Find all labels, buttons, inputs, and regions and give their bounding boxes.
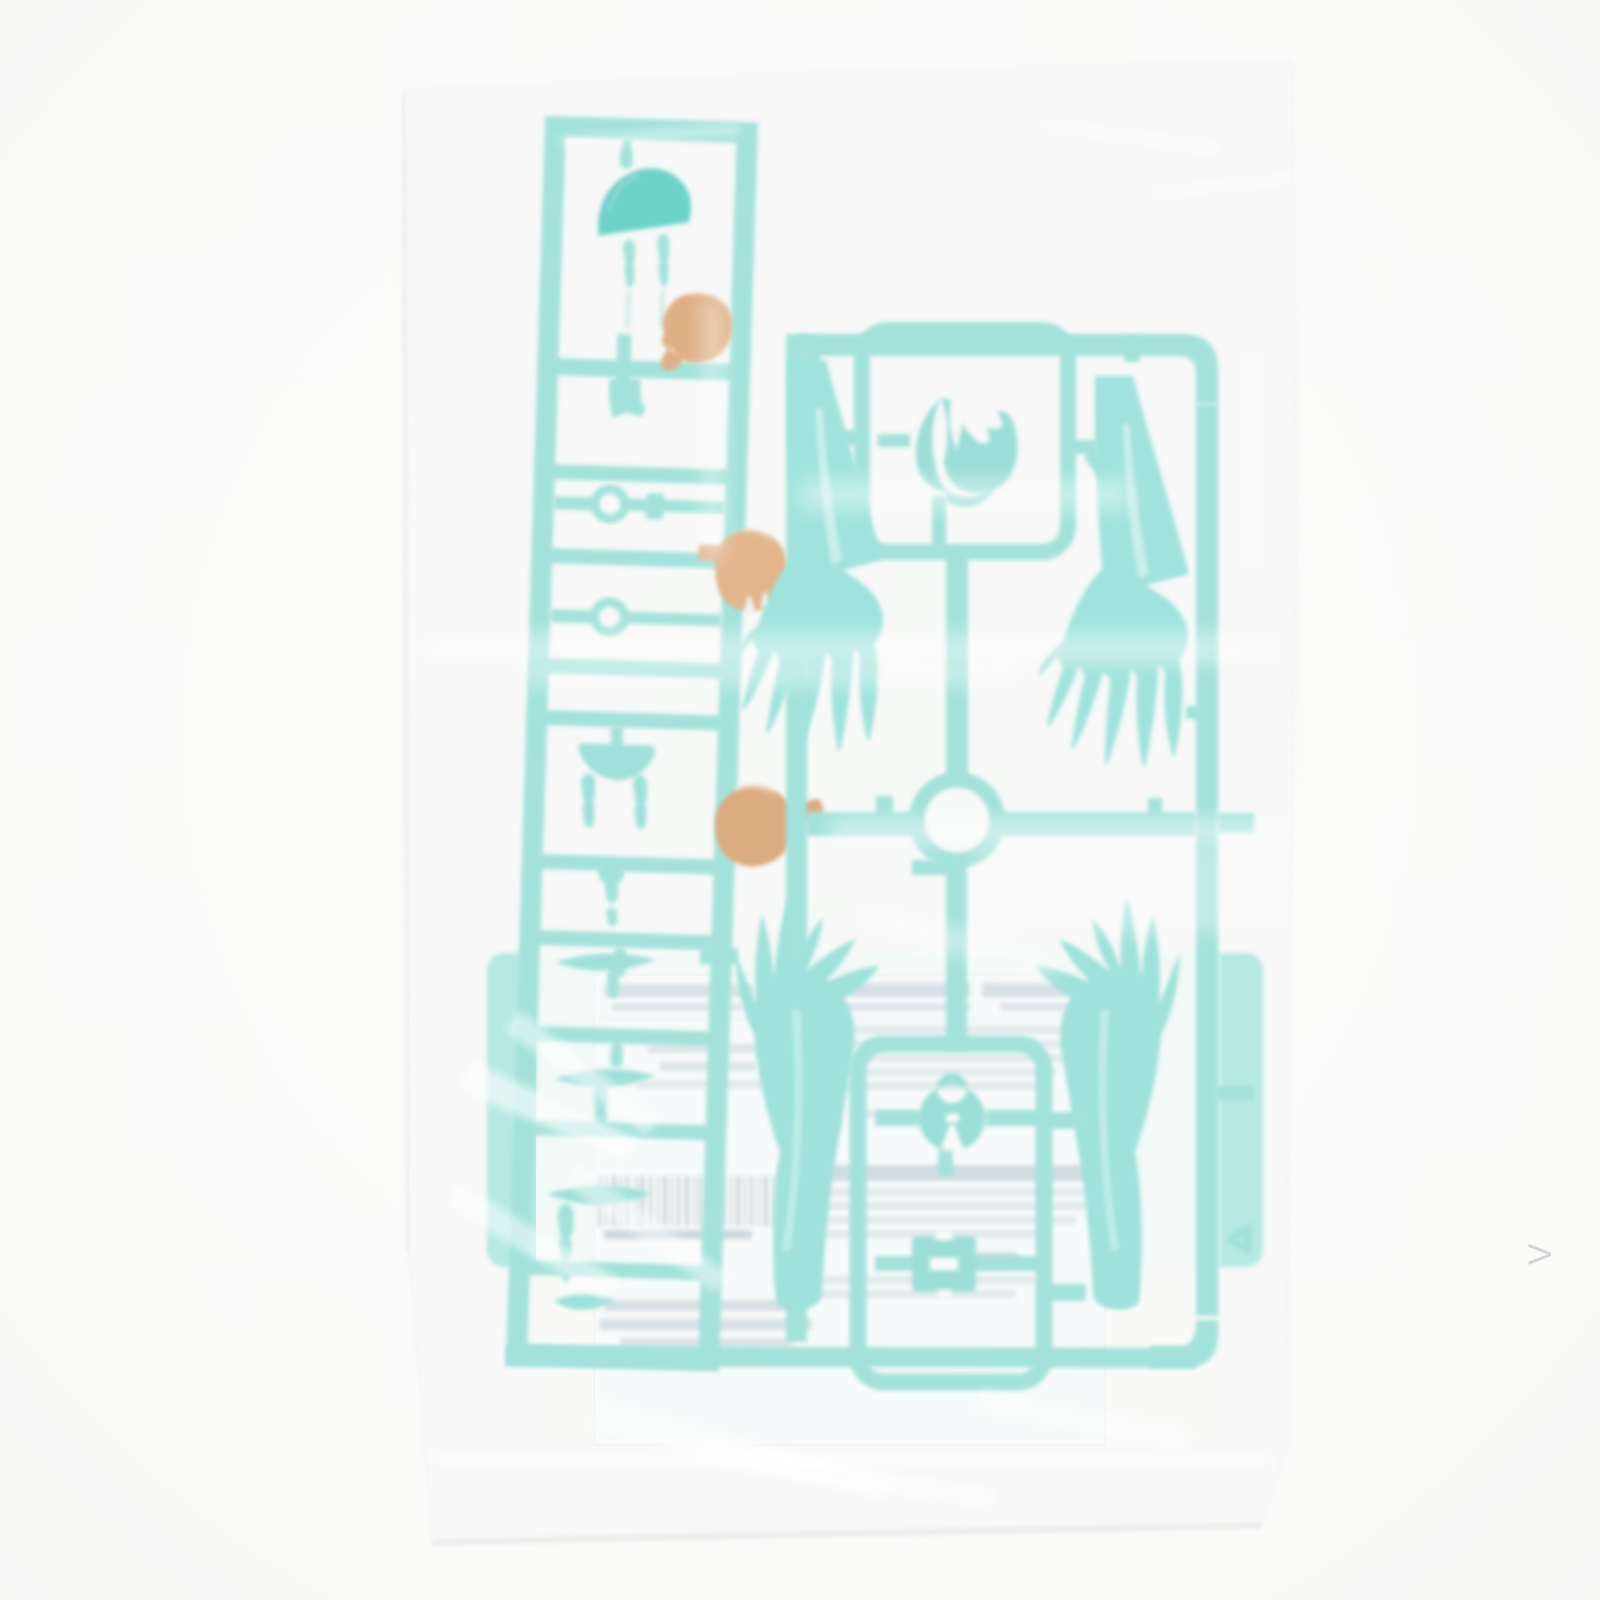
svg-text:V: V (1522, 1243, 1558, 1265)
